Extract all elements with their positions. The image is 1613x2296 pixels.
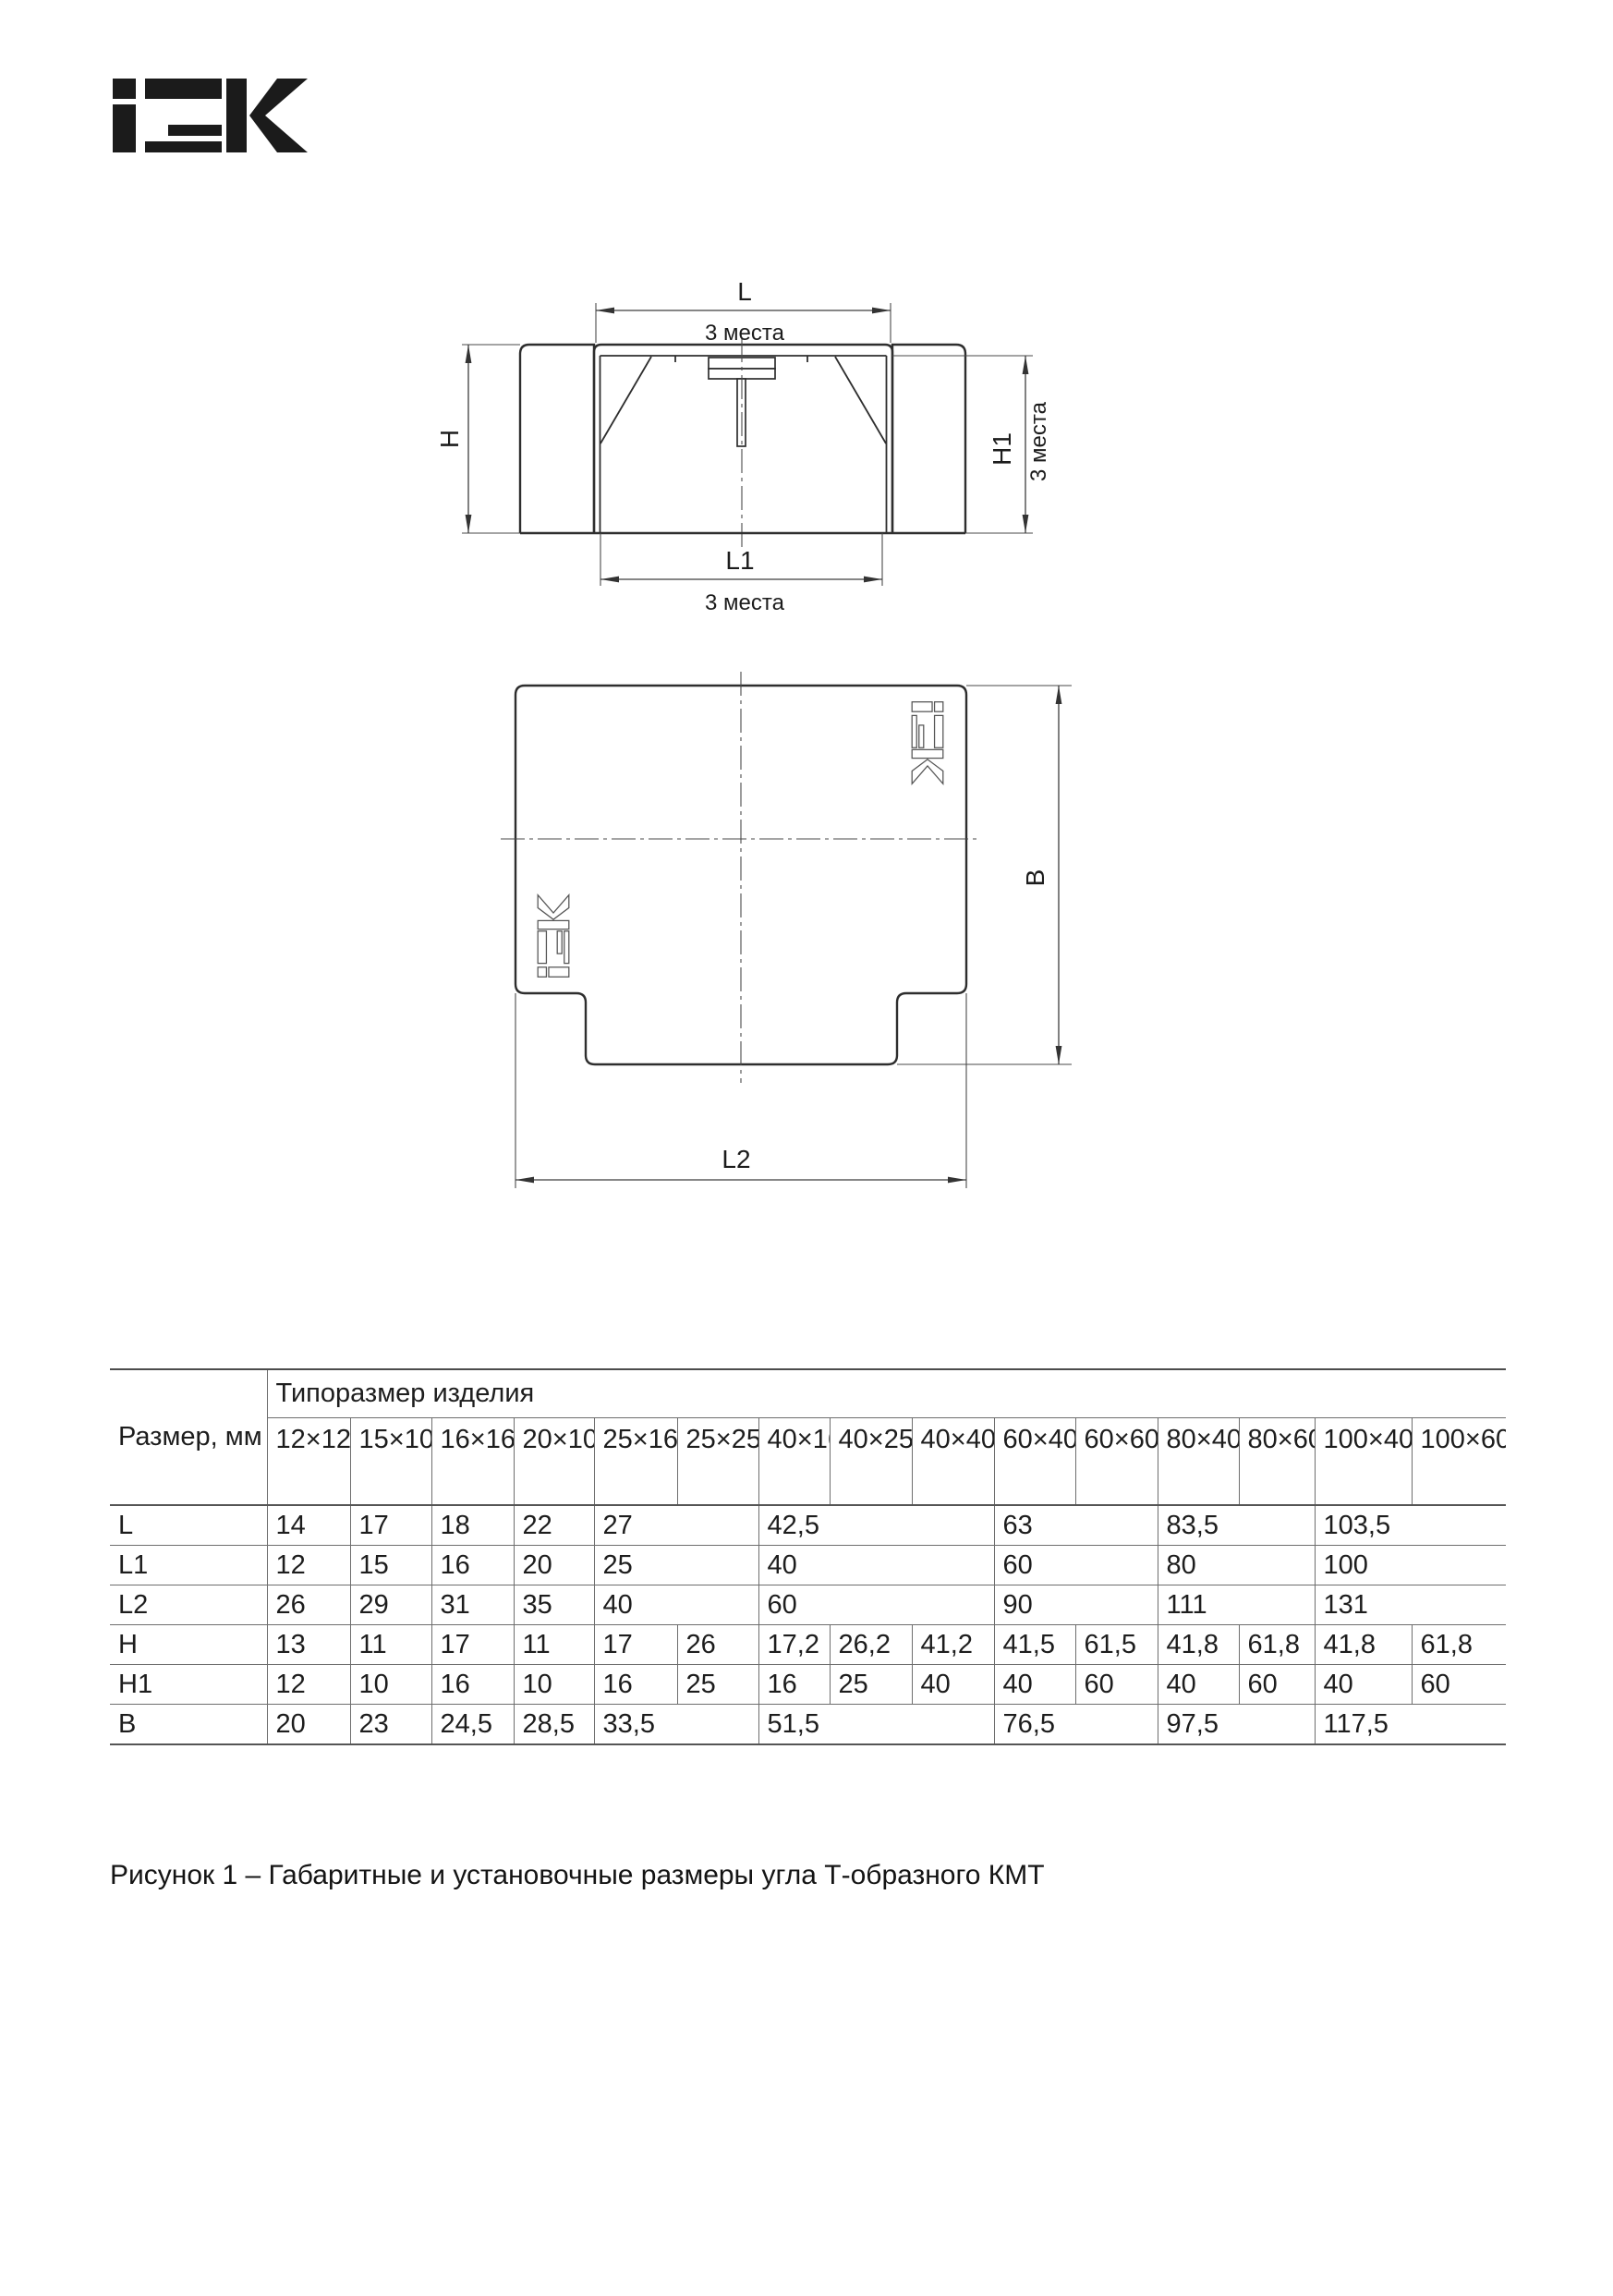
table-cell: 14 <box>267 1505 350 1546</box>
dim-label-H: H <box>435 430 464 448</box>
table-cell: 12 <box>267 1665 350 1705</box>
table-cell: 61,8 <box>1412 1625 1506 1665</box>
dim-label-B: B <box>1021 869 1049 887</box>
table-cell: 26 <box>677 1625 758 1665</box>
table-cell: 17,2 <box>758 1625 830 1665</box>
dimension-L: L 3 места <box>596 277 891 346</box>
table-cell: 60 <box>1412 1665 1506 1705</box>
size-column-header: 20×10 <box>514 1418 594 1506</box>
table-cell: 60 <box>1075 1665 1158 1705</box>
iek-watermark-icon <box>912 702 943 784</box>
table-cell: 40 <box>594 1585 758 1625</box>
table-cell: 40 <box>1158 1665 1239 1705</box>
dimension-H1: H1 3 места <box>892 356 1051 533</box>
table-cell: 26 <box>267 1585 350 1625</box>
row-label: B <box>110 1705 267 1745</box>
table-cell: 25 <box>594 1546 758 1585</box>
table-cell: 11 <box>514 1625 594 1665</box>
table-cell: 90 <box>994 1585 1158 1625</box>
figure-drawings: L 3 места H H1 3 места L1 3 места <box>406 259 1118 1210</box>
row-label: L2 <box>110 1585 267 1625</box>
table-cell: 12 <box>267 1546 350 1585</box>
table-cell: 16 <box>594 1665 677 1705</box>
table-cell: 41,8 <box>1315 1625 1412 1665</box>
table-row: H1121016101625162540406040604060 <box>110 1665 1506 1705</box>
table-row: H13111711172617,226,241,241,561,541,861,… <box>110 1625 1506 1665</box>
dimension-H: H <box>435 345 520 533</box>
dimensions-table-container: Размер, ммТипоразмер изделия12×1215×1016… <box>110 1368 1506 1745</box>
table-cell: 16 <box>431 1546 514 1585</box>
dimensions-table: Размер, ммТипоразмер изделия12×1215×1016… <box>110 1368 1506 1745</box>
table-cell: 80 <box>1158 1546 1315 1585</box>
table-cell: 60 <box>1239 1665 1315 1705</box>
table-cell: 41,2 <box>912 1625 994 1665</box>
table-row: L141718222742,56383,5103,5 <box>110 1505 1506 1546</box>
table-cell: 97,5 <box>1158 1705 1315 1745</box>
dim-note-L1: 3 места <box>705 590 785 615</box>
table-cell: 35 <box>514 1585 594 1625</box>
table-cell: 15 <box>350 1546 431 1585</box>
iek-logo-glyphs <box>113 79 308 152</box>
table-cell: 10 <box>350 1665 431 1705</box>
size-column-header: 60×60 <box>1075 1418 1158 1506</box>
row-label: H1 <box>110 1665 267 1705</box>
dimension-L1: L1 3 места <box>600 533 882 615</box>
table-cell: 24,5 <box>431 1705 514 1745</box>
table-cell: 26,2 <box>830 1625 912 1665</box>
table-cell: 10 <box>514 1665 594 1705</box>
table-cell: 51,5 <box>758 1705 994 1745</box>
size-column-header: 12×12 <box>267 1418 350 1506</box>
dim-label-L1: L1 <box>725 546 754 575</box>
table-row: B202324,528,533,551,576,597,5117,5 <box>110 1705 1506 1745</box>
size-column-header: 60×40 <box>994 1418 1075 1506</box>
row-label: H <box>110 1625 267 1665</box>
dim-note-H1: 3 места <box>1026 401 1051 481</box>
dim-note-L: 3 места <box>705 321 785 346</box>
table-cell: 17 <box>594 1625 677 1665</box>
size-column-header: 80×40 <box>1158 1418 1239 1506</box>
table-cell: 100 <box>1315 1546 1506 1585</box>
table-cell: 40 <box>912 1665 994 1705</box>
table-cell: 131 <box>1315 1585 1506 1625</box>
table-cell: 17 <box>431 1625 514 1665</box>
table-cell: 31 <box>431 1585 514 1625</box>
front-view-drawing: L 3 места H H1 3 места L1 3 места <box>435 277 1051 615</box>
table-cell: 42,5 <box>758 1505 994 1546</box>
table-cell: 63 <box>994 1505 1158 1546</box>
front-right-side <box>892 345 965 533</box>
table-cell: 20 <box>514 1546 594 1585</box>
size-column-header: 15×10 <box>350 1418 431 1506</box>
table-cell: 27 <box>594 1505 758 1546</box>
size-column-header: 25×25 <box>677 1418 758 1506</box>
table-cell: 40 <box>1315 1665 1412 1705</box>
size-column-header: 40×16 <box>758 1418 830 1506</box>
table-cell: 20 <box>267 1705 350 1745</box>
table-cell: 40 <box>758 1546 994 1585</box>
table-cell: 61,8 <box>1239 1625 1315 1665</box>
table-cell: 13 <box>267 1625 350 1665</box>
table-cell: 23 <box>350 1705 431 1745</box>
iek-watermark-icon <box>538 895 569 978</box>
row-label: L <box>110 1505 267 1546</box>
table-corner-header: Размер, мм <box>110 1369 267 1505</box>
table-cell: 61,5 <box>1075 1625 1158 1665</box>
front-left-side <box>520 345 594 533</box>
table-cell: 25 <box>677 1665 758 1705</box>
dim-label-L2: L2 <box>722 1145 750 1173</box>
table-row: L11215162025406080100 <box>110 1546 1506 1585</box>
figure-caption: Рисунок 1 – Габаритные и установочные ра… <box>110 1860 1045 1891</box>
table-cell: 17 <box>350 1505 431 1546</box>
table-group-header: Типоразмер изделия <box>267 1369 1506 1418</box>
table-cell: 41,8 <box>1158 1625 1239 1665</box>
size-column-header: 16×16 <box>431 1418 514 1506</box>
table-cell: 28,5 <box>514 1705 594 1745</box>
table-cell: 103,5 <box>1315 1505 1506 1546</box>
table-cell: 18 <box>431 1505 514 1546</box>
table-row: L226293135406090111131 <box>110 1585 1506 1625</box>
size-column-header: 100×60 <box>1412 1418 1506 1506</box>
iek-logo <box>113 79 308 152</box>
table-cell: 25 <box>830 1665 912 1705</box>
table-cell: 11 <box>350 1625 431 1665</box>
table-cell: 16 <box>758 1665 830 1705</box>
table-cell: 16 <box>431 1665 514 1705</box>
table-cell: 33,5 <box>594 1705 758 1745</box>
size-column-header: 100×40 <box>1315 1418 1412 1506</box>
top-view-drawing: B L2 <box>501 672 1072 1188</box>
table-cell: 41,5 <box>994 1625 1075 1665</box>
table-cell: 117,5 <box>1315 1705 1506 1745</box>
dim-label-L: L <box>737 277 752 306</box>
datasheet-page: { "document": { "brand_logo": "iEK", "ca… <box>0 0 1613 2296</box>
table-cell: 76,5 <box>994 1705 1158 1745</box>
size-column-header: 40×40 <box>912 1418 994 1506</box>
table-cell: 29 <box>350 1585 431 1625</box>
table-cell: 111 <box>1158 1585 1315 1625</box>
table-cell: 40 <box>994 1665 1075 1705</box>
table-cell: 60 <box>758 1585 994 1625</box>
dim-label-H1: H1 <box>988 432 1016 466</box>
size-column-header: 25×16 <box>594 1418 677 1506</box>
table-cell: 83,5 <box>1158 1505 1315 1546</box>
table-cell: 60 <box>994 1546 1158 1585</box>
size-column-header: 80×60 <box>1239 1418 1315 1506</box>
size-column-header: 40×25 <box>830 1418 912 1506</box>
row-label: L1 <box>110 1546 267 1585</box>
table-cell: 22 <box>514 1505 594 1546</box>
